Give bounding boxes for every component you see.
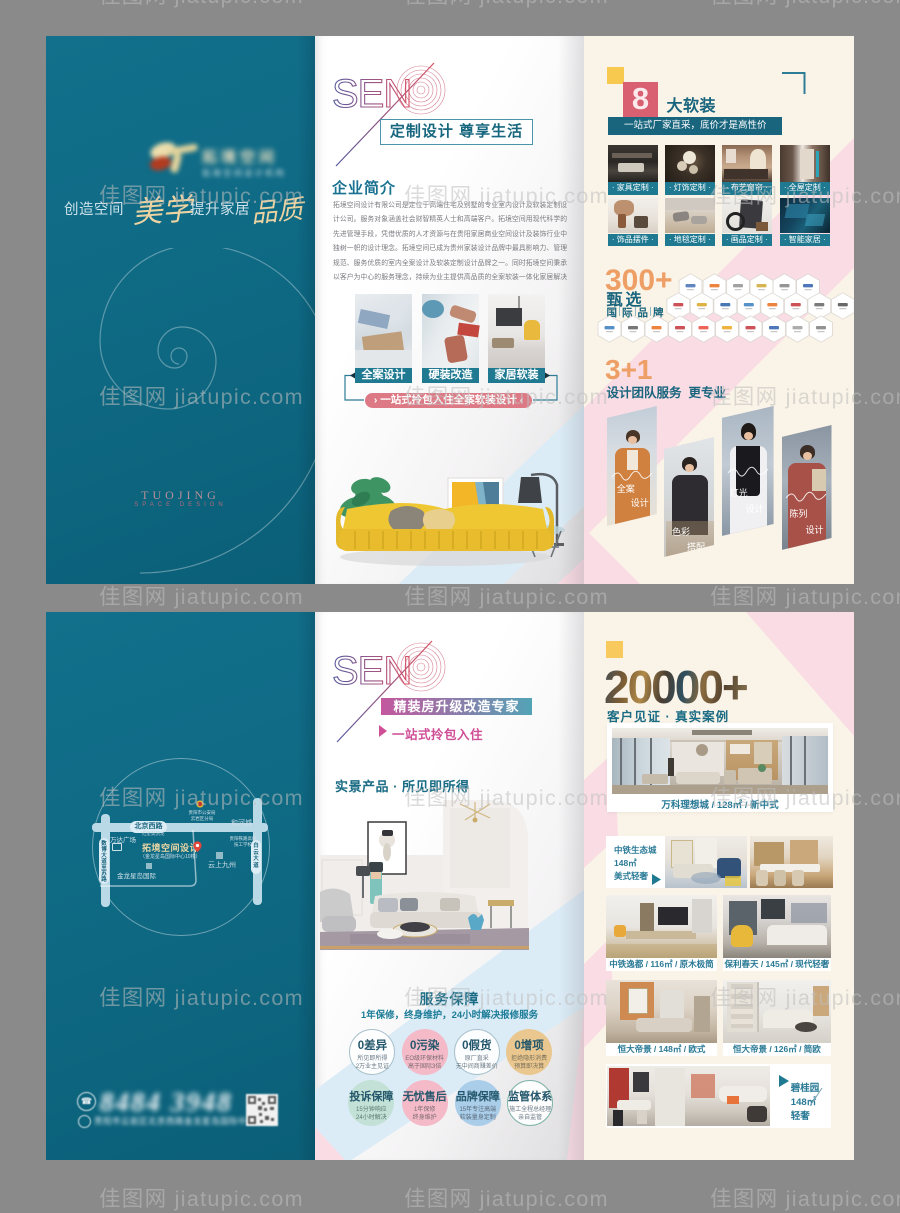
svg-text:SEN: SEN <box>332 72 411 116</box>
svg-text:SEN: SEN <box>332 649 411 693</box>
